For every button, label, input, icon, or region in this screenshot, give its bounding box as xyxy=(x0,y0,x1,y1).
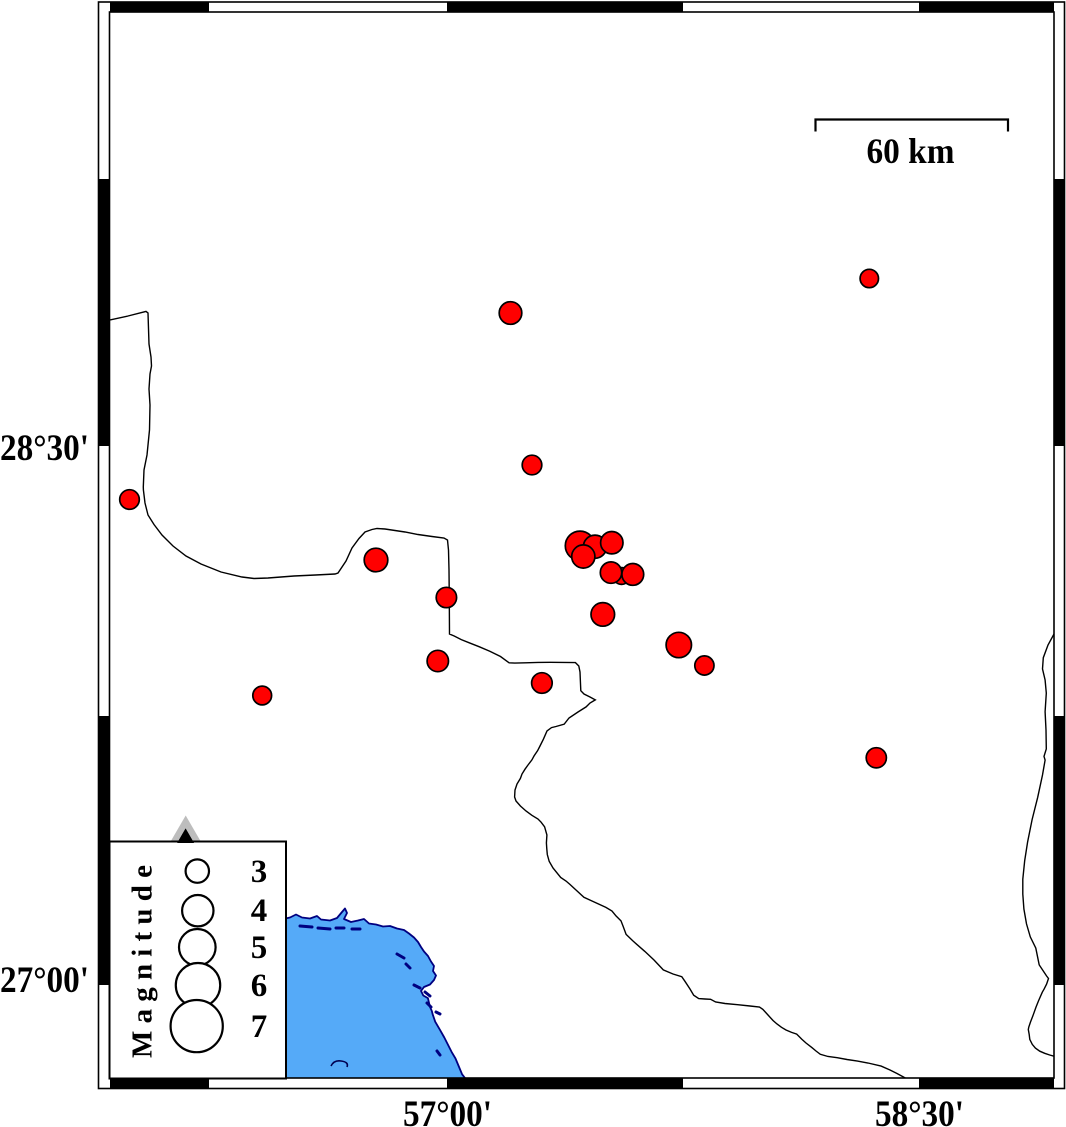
svg-text:Magnitude: Magnitude xyxy=(127,858,159,1058)
svg-text:57°00': 57°00' xyxy=(403,1094,492,1127)
svg-text:3: 3 xyxy=(251,854,268,890)
svg-text:4: 4 xyxy=(251,893,268,929)
svg-text:5: 5 xyxy=(251,930,268,966)
svg-text:58°30': 58°30' xyxy=(875,1094,964,1127)
svg-text:28°30': 28°30' xyxy=(0,428,89,469)
svg-text:6: 6 xyxy=(251,968,268,1004)
svg-text:27°00': 27°00' xyxy=(0,960,89,1001)
svg-text:7: 7 xyxy=(251,1009,268,1045)
svg-text:60 km: 60 km xyxy=(867,131,955,171)
